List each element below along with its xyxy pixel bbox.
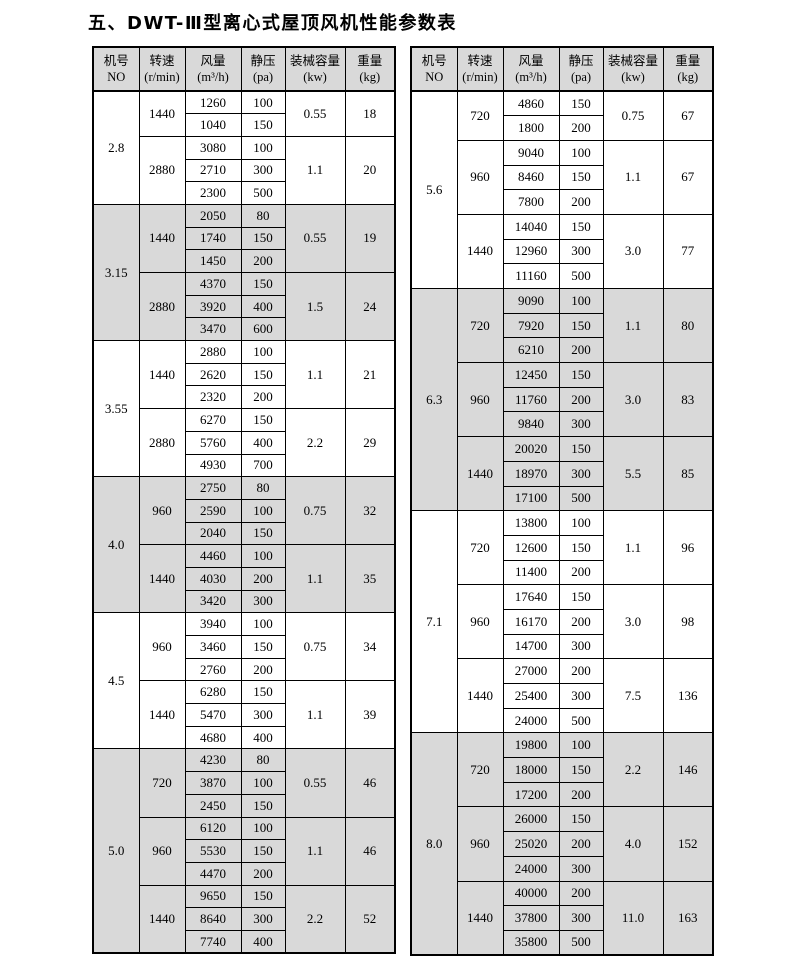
pressure-cell: 150 bbox=[559, 214, 603, 239]
speed-cell: 720 bbox=[457, 91, 503, 140]
pressure-cell: 150 bbox=[559, 758, 603, 783]
flow-cell: 5530 bbox=[185, 840, 241, 863]
speed-cell: 960 bbox=[457, 807, 503, 881]
pressure-cell: 200 bbox=[559, 190, 603, 215]
pressure-cell: 100 bbox=[241, 136, 285, 159]
pressure-cell: 400 bbox=[241, 431, 285, 454]
page-title: 五、DWT-Ⅲ型离心式屋顶风机性能参数表 bbox=[88, 9, 457, 35]
power-cell: 2.2 bbox=[285, 885, 345, 953]
pressure-cell: 150 bbox=[241, 522, 285, 545]
pressure-cell: 100 bbox=[241, 341, 285, 364]
header-line1: 转速 bbox=[458, 53, 503, 69]
speed-cell: 720 bbox=[457, 733, 503, 807]
flow-cell: 3470 bbox=[185, 318, 241, 341]
power-cell: 1.5 bbox=[285, 273, 345, 341]
pressure-cell: 80 bbox=[241, 204, 285, 227]
flow-cell: 2620 bbox=[185, 363, 241, 386]
header-line2: NO bbox=[412, 69, 457, 85]
flow-cell: 9650 bbox=[185, 885, 241, 908]
speed-cell: 1440 bbox=[139, 204, 185, 272]
header-line1: 风量 bbox=[504, 53, 559, 69]
weight-cell: 52 bbox=[345, 885, 395, 953]
header-line1: 静压 bbox=[560, 53, 603, 69]
pressure-cell: 100 bbox=[559, 511, 603, 536]
weight-cell: 19 bbox=[345, 204, 395, 272]
pressure-cell: 150 bbox=[559, 91, 603, 116]
speed-cell: 1440 bbox=[457, 881, 503, 955]
flow-cell: 2750 bbox=[185, 477, 241, 500]
power-cell: 1.1 bbox=[285, 545, 345, 613]
table-row: 7.1720138001001.196 bbox=[411, 511, 713, 536]
header-line1: 机号 bbox=[412, 53, 457, 69]
header-cell: 风量(m³/h) bbox=[185, 47, 241, 91]
document-page: 五、DWT-Ⅲ型离心式屋顶风机性能参数表 机号NO转速(r/min)风量(m³/… bbox=[0, 0, 800, 962]
flow-cell: 4370 bbox=[185, 273, 241, 296]
header-line1: 机号 bbox=[94, 53, 139, 69]
pressure-cell: 150 bbox=[241, 273, 285, 296]
flow-cell: 7740 bbox=[185, 930, 241, 953]
flow-cell: 3920 bbox=[185, 295, 241, 318]
speed-cell: 720 bbox=[457, 511, 503, 585]
table-row: 96090401001.167 bbox=[411, 140, 713, 165]
flow-cell: 2880 bbox=[185, 341, 241, 364]
flow-cell: 25020 bbox=[503, 832, 559, 857]
flow-cell: 11760 bbox=[503, 387, 559, 412]
flow-cell: 14040 bbox=[503, 214, 559, 239]
weight-cell: 67 bbox=[663, 91, 713, 140]
flow-cell: 1260 bbox=[185, 91, 241, 114]
table-row: 960124501503.083 bbox=[411, 363, 713, 388]
flow-cell: 4230 bbox=[185, 749, 241, 772]
pressure-cell: 400 bbox=[241, 295, 285, 318]
pressure-cell: 200 bbox=[241, 862, 285, 885]
header-line2: NO bbox=[94, 69, 139, 85]
speed-cell: 2880 bbox=[139, 273, 185, 341]
speed-cell: 1440 bbox=[139, 681, 185, 749]
power-cell: 7.5 bbox=[603, 659, 663, 733]
header-cell: 重量(kg) bbox=[663, 47, 713, 91]
header-line2: (kw) bbox=[286, 69, 345, 85]
table-row: 4.09602750800.7532 bbox=[93, 477, 395, 500]
pressure-cell: 200 bbox=[559, 659, 603, 684]
weight-cell: 21 bbox=[345, 341, 395, 409]
speed-cell: 720 bbox=[139, 749, 185, 817]
pressure-cell: 100 bbox=[241, 613, 285, 636]
table-row: 1440200201505.585 bbox=[411, 437, 713, 462]
flow-cell: 1450 bbox=[185, 250, 241, 273]
header-line2: (pa) bbox=[242, 69, 285, 85]
pressure-cell: 150 bbox=[241, 636, 285, 659]
pressure-cell: 300 bbox=[241, 704, 285, 727]
header-cell: 装械容量(kw) bbox=[603, 47, 663, 91]
weight-cell: 152 bbox=[663, 807, 713, 881]
flow-cell: 2050 bbox=[185, 204, 241, 227]
pressure-cell: 200 bbox=[241, 658, 285, 681]
weight-cell: 96 bbox=[663, 511, 713, 585]
flow-cell: 9040 bbox=[503, 140, 559, 165]
no-cell: 5.6 bbox=[411, 91, 457, 289]
pressure-cell: 500 bbox=[241, 182, 285, 205]
flow-cell: 37800 bbox=[503, 906, 559, 931]
pressure-cell: 300 bbox=[559, 412, 603, 437]
flow-cell: 2450 bbox=[185, 794, 241, 817]
pressure-cell: 200 bbox=[241, 250, 285, 273]
params-table-right: 机号NO转速(r/min)风量(m³/h)静压(pa)装械容量(kw)重量(kg… bbox=[410, 46, 714, 956]
power-cell: 0.75 bbox=[285, 477, 345, 545]
speed-cell: 960 bbox=[457, 140, 503, 214]
table-row: 96061201001.146 bbox=[93, 817, 395, 840]
table-row: 5.07204230800.5546 bbox=[93, 749, 395, 772]
header-cell: 静压(pa) bbox=[241, 47, 285, 91]
header-line2: (kw) bbox=[604, 69, 663, 85]
pressure-cell: 200 bbox=[241, 567, 285, 590]
speed-cell: 1440 bbox=[457, 437, 503, 511]
header-line2: (r/min) bbox=[140, 69, 185, 85]
header-line2: (m³/h) bbox=[504, 69, 559, 85]
speed-cell: 1440 bbox=[139, 341, 185, 409]
pressure-cell: 150 bbox=[241, 794, 285, 817]
pressure-cell: 300 bbox=[241, 908, 285, 931]
header-line2: (r/min) bbox=[458, 69, 503, 85]
no-cell: 2.8 bbox=[93, 91, 139, 204]
power-cell: 1.1 bbox=[285, 136, 345, 204]
pressure-cell: 150 bbox=[559, 363, 603, 388]
flow-cell: 2040 bbox=[185, 522, 241, 545]
flow-cell: 26000 bbox=[503, 807, 559, 832]
power-cell: 0.75 bbox=[603, 91, 663, 140]
table-row: 3.55144028801001.121 bbox=[93, 341, 395, 364]
pressure-cell: 80 bbox=[241, 477, 285, 500]
speed-cell: 1440 bbox=[457, 659, 503, 733]
pressure-cell: 500 bbox=[559, 708, 603, 733]
flow-cell: 6270 bbox=[185, 409, 241, 432]
flow-cell: 24000 bbox=[503, 708, 559, 733]
table-row: 1440140401503.077 bbox=[411, 214, 713, 239]
flow-cell: 3420 bbox=[185, 590, 241, 613]
flow-cell: 12450 bbox=[503, 363, 559, 388]
pressure-cell: 200 bbox=[559, 560, 603, 585]
pressure-cell: 100 bbox=[241, 817, 285, 840]
pressure-cell: 150 bbox=[559, 807, 603, 832]
flow-cell: 40000 bbox=[503, 881, 559, 906]
header-line1: 转速 bbox=[140, 53, 185, 69]
speed-cell: 2880 bbox=[139, 409, 185, 477]
flow-cell: 6120 bbox=[185, 817, 241, 840]
pressure-cell: 150 bbox=[241, 681, 285, 704]
pressure-cell: 200 bbox=[559, 609, 603, 634]
flow-cell: 4030 bbox=[185, 567, 241, 590]
no-cell: 3.55 bbox=[93, 341, 139, 477]
no-cell: 5.0 bbox=[93, 749, 139, 953]
pressure-cell: 200 bbox=[559, 881, 603, 906]
power-cell: 11.0 bbox=[603, 881, 663, 955]
flow-cell: 7800 bbox=[503, 190, 559, 215]
pressure-cell: 100 bbox=[241, 499, 285, 522]
pressure-cell: 300 bbox=[559, 684, 603, 709]
flow-cell: 14700 bbox=[503, 634, 559, 659]
weight-cell: 80 bbox=[663, 289, 713, 363]
pressure-cell: 400 bbox=[241, 930, 285, 953]
flow-cell: 27000 bbox=[503, 659, 559, 684]
header-line1: 重量 bbox=[346, 53, 395, 69]
weight-cell: 20 bbox=[345, 136, 395, 204]
power-cell: 2.2 bbox=[285, 409, 345, 477]
flow-cell: 3460 bbox=[185, 636, 241, 659]
table-row: 4.596039401000.7534 bbox=[93, 613, 395, 636]
table-row: 288030801001.120 bbox=[93, 136, 395, 159]
pressure-cell: 200 bbox=[559, 832, 603, 857]
weight-cell: 32 bbox=[345, 477, 395, 545]
speed-cell: 960 bbox=[139, 817, 185, 885]
header-cell: 静压(pa) bbox=[559, 47, 603, 91]
no-cell: 8.0 bbox=[411, 733, 457, 955]
table-row: 8.0720198001002.2146 bbox=[411, 733, 713, 758]
pressure-cell: 150 bbox=[241, 885, 285, 908]
flow-cell: 4680 bbox=[185, 726, 241, 749]
pressure-cell: 150 bbox=[241, 227, 285, 250]
pressure-cell: 200 bbox=[559, 116, 603, 141]
pressure-cell: 500 bbox=[559, 930, 603, 955]
pressure-cell: 100 bbox=[241, 91, 285, 114]
flow-cell: 2590 bbox=[185, 499, 241, 522]
flow-cell: 2710 bbox=[185, 159, 241, 182]
weight-cell: 163 bbox=[663, 881, 713, 955]
flow-cell: 20020 bbox=[503, 437, 559, 462]
flow-cell: 2760 bbox=[185, 658, 241, 681]
speed-cell: 1440 bbox=[139, 885, 185, 953]
pressure-cell: 200 bbox=[241, 386, 285, 409]
header-line1: 重量 bbox=[664, 53, 713, 69]
power-cell: 3.0 bbox=[603, 363, 663, 437]
header-row: 机号NO转速(r/min)风量(m³/h)静压(pa)装械容量(kw)重量(kg… bbox=[411, 47, 713, 91]
header-line2: (kg) bbox=[664, 69, 713, 85]
weight-cell: 77 bbox=[663, 214, 713, 288]
flow-cell: 18970 bbox=[503, 461, 559, 486]
pressure-cell: 500 bbox=[559, 264, 603, 289]
pressure-cell: 150 bbox=[241, 409, 285, 432]
weight-cell: 24 bbox=[345, 273, 395, 341]
flow-cell: 4460 bbox=[185, 545, 241, 568]
power-cell: 0.55 bbox=[285, 204, 345, 272]
pressure-cell: 300 bbox=[559, 239, 603, 264]
pressure-cell: 150 bbox=[559, 585, 603, 610]
flow-cell: 24000 bbox=[503, 856, 559, 881]
table-row: 288043701501.524 bbox=[93, 273, 395, 296]
flow-cell: 5760 bbox=[185, 431, 241, 454]
header-cell: 风量(m³/h) bbox=[503, 47, 559, 91]
flow-cell: 4860 bbox=[503, 91, 559, 116]
power-cell: 1.1 bbox=[285, 817, 345, 885]
pressure-cell: 300 bbox=[241, 590, 285, 613]
speed-cell: 1440 bbox=[457, 214, 503, 288]
no-cell: 4.5 bbox=[93, 613, 139, 749]
pressure-cell: 200 bbox=[559, 387, 603, 412]
flow-cell: 25400 bbox=[503, 684, 559, 709]
table-row: 6.372090901001.180 bbox=[411, 289, 713, 314]
pressure-cell: 100 bbox=[241, 772, 285, 795]
header-cell: 装械容量(kw) bbox=[285, 47, 345, 91]
header-row: 机号NO转速(r/min)风量(m³/h)静压(pa)装械容量(kw)重量(kg… bbox=[93, 47, 395, 91]
flow-cell: 4470 bbox=[185, 862, 241, 885]
speed-cell: 960 bbox=[139, 477, 185, 545]
flow-cell: 17200 bbox=[503, 782, 559, 807]
table-row: 2.8144012601000.5518 bbox=[93, 91, 395, 114]
flow-cell: 8640 bbox=[185, 908, 241, 931]
flow-cell: 17640 bbox=[503, 585, 559, 610]
flow-cell: 4930 bbox=[185, 454, 241, 477]
speed-cell: 960 bbox=[139, 613, 185, 681]
table-row: 3.1514402050800.5519 bbox=[93, 204, 395, 227]
pressure-cell: 700 bbox=[241, 454, 285, 477]
table-row: 1440270002007.5136 bbox=[411, 659, 713, 684]
pressure-cell: 100 bbox=[559, 733, 603, 758]
power-cell: 3.0 bbox=[603, 214, 663, 288]
header-line1: 风量 bbox=[186, 53, 241, 69]
power-cell: 0.55 bbox=[285, 749, 345, 817]
weight-cell: 35 bbox=[345, 545, 395, 613]
weight-cell: 46 bbox=[345, 749, 395, 817]
power-cell: 1.1 bbox=[285, 341, 345, 409]
header-cell: 转速(r/min) bbox=[457, 47, 503, 91]
power-cell: 1.1 bbox=[603, 140, 663, 214]
weight-cell: 85 bbox=[663, 437, 713, 511]
flow-cell: 2320 bbox=[185, 386, 241, 409]
flow-cell: 16170 bbox=[503, 609, 559, 634]
pressure-cell: 600 bbox=[241, 318, 285, 341]
pressure-cell: 150 bbox=[559, 437, 603, 462]
header-cell: 转速(r/min) bbox=[139, 47, 185, 91]
speed-cell: 720 bbox=[457, 289, 503, 363]
flow-cell: 2300 bbox=[185, 182, 241, 205]
flow-cell: 3940 bbox=[185, 613, 241, 636]
header-cell: 机号NO bbox=[93, 47, 139, 91]
header-line1: 静压 bbox=[242, 53, 285, 69]
flow-cell: 11400 bbox=[503, 560, 559, 585]
power-cell: 1.1 bbox=[603, 289, 663, 363]
params-table-left: 机号NO转速(r/min)风量(m³/h)静压(pa)装械容量(kw)重量(kg… bbox=[92, 46, 396, 954]
pressure-cell: 300 bbox=[559, 634, 603, 659]
flow-cell: 12960 bbox=[503, 239, 559, 264]
header-cell: 重量(kg) bbox=[345, 47, 395, 91]
pressure-cell: 400 bbox=[241, 726, 285, 749]
pressure-cell: 100 bbox=[559, 289, 603, 314]
table-row: 144044601001.135 bbox=[93, 545, 395, 568]
flow-cell: 13800 bbox=[503, 511, 559, 536]
no-cell: 7.1 bbox=[411, 511, 457, 733]
flow-cell: 1040 bbox=[185, 114, 241, 137]
table-row: 144062801501.139 bbox=[93, 681, 395, 704]
flow-cell: 5470 bbox=[185, 704, 241, 727]
pressure-cell: 150 bbox=[241, 114, 285, 137]
pressure-cell: 300 bbox=[559, 856, 603, 881]
pressure-cell: 150 bbox=[241, 363, 285, 386]
header-line2: (m³/h) bbox=[186, 69, 241, 85]
no-cell: 3.15 bbox=[93, 204, 139, 340]
flow-cell: 35800 bbox=[503, 930, 559, 955]
header-line2: (pa) bbox=[560, 69, 603, 85]
flow-cell: 6280 bbox=[185, 681, 241, 704]
table-row: 960176401503.098 bbox=[411, 585, 713, 610]
flow-cell: 1740 bbox=[185, 227, 241, 250]
power-cell: 1.1 bbox=[285, 681, 345, 749]
table-row: 960260001504.0152 bbox=[411, 807, 713, 832]
header-cell: 机号NO bbox=[411, 47, 457, 91]
speed-cell: 960 bbox=[457, 363, 503, 437]
pressure-cell: 150 bbox=[559, 313, 603, 338]
weight-cell: 146 bbox=[663, 733, 713, 807]
flow-cell: 9090 bbox=[503, 289, 559, 314]
power-cell: 1.1 bbox=[603, 511, 663, 585]
no-cell: 4.0 bbox=[93, 477, 139, 613]
flow-cell: 17100 bbox=[503, 486, 559, 511]
flow-cell: 12600 bbox=[503, 535, 559, 560]
weight-cell: 39 bbox=[345, 681, 395, 749]
weight-cell: 34 bbox=[345, 613, 395, 681]
speed-cell: 1440 bbox=[139, 545, 185, 613]
table-row: 14404000020011.0163 bbox=[411, 881, 713, 906]
flow-cell: 1800 bbox=[503, 116, 559, 141]
flow-cell: 7920 bbox=[503, 313, 559, 338]
weight-cell: 67 bbox=[663, 140, 713, 214]
weight-cell: 18 bbox=[345, 91, 395, 136]
pressure-cell: 300 bbox=[559, 906, 603, 931]
pressure-cell: 200 bbox=[559, 782, 603, 807]
power-cell: 2.2 bbox=[603, 733, 663, 807]
table-row: 144096501502.252 bbox=[93, 885, 395, 908]
table-row: 288062701502.229 bbox=[93, 409, 395, 432]
pressure-cell: 100 bbox=[559, 140, 603, 165]
pressure-cell: 150 bbox=[559, 535, 603, 560]
flow-cell: 3080 bbox=[185, 136, 241, 159]
flow-cell: 8460 bbox=[503, 165, 559, 190]
power-cell: 3.0 bbox=[603, 585, 663, 659]
weight-cell: 29 bbox=[345, 409, 395, 477]
flow-cell: 11160 bbox=[503, 264, 559, 289]
power-cell: 5.5 bbox=[603, 437, 663, 511]
pressure-cell: 200 bbox=[559, 338, 603, 363]
flow-cell: 19800 bbox=[503, 733, 559, 758]
speed-cell: 1440 bbox=[139, 91, 185, 136]
table-row: 5.672048601500.7567 bbox=[411, 91, 713, 116]
flow-cell: 6210 bbox=[503, 338, 559, 363]
pressure-cell: 500 bbox=[559, 486, 603, 511]
power-cell: 4.0 bbox=[603, 807, 663, 881]
pressure-cell: 100 bbox=[241, 545, 285, 568]
pressure-cell: 150 bbox=[241, 840, 285, 863]
weight-cell: 98 bbox=[663, 585, 713, 659]
power-cell: 0.75 bbox=[285, 613, 345, 681]
weight-cell: 83 bbox=[663, 363, 713, 437]
pressure-cell: 300 bbox=[241, 159, 285, 182]
flow-cell: 3870 bbox=[185, 772, 241, 795]
weight-cell: 46 bbox=[345, 817, 395, 885]
pressure-cell: 300 bbox=[559, 461, 603, 486]
header-line1: 装械容量 bbox=[604, 53, 663, 69]
flow-cell: 18000 bbox=[503, 758, 559, 783]
no-cell: 6.3 bbox=[411, 289, 457, 511]
flow-cell: 9840 bbox=[503, 412, 559, 437]
power-cell: 0.55 bbox=[285, 91, 345, 136]
header-line2: (kg) bbox=[346, 69, 395, 85]
header-line1: 装械容量 bbox=[286, 53, 345, 69]
pressure-cell: 150 bbox=[559, 165, 603, 190]
pressure-cell: 80 bbox=[241, 749, 285, 772]
speed-cell: 2880 bbox=[139, 136, 185, 204]
weight-cell: 136 bbox=[663, 659, 713, 733]
speed-cell: 960 bbox=[457, 585, 503, 659]
